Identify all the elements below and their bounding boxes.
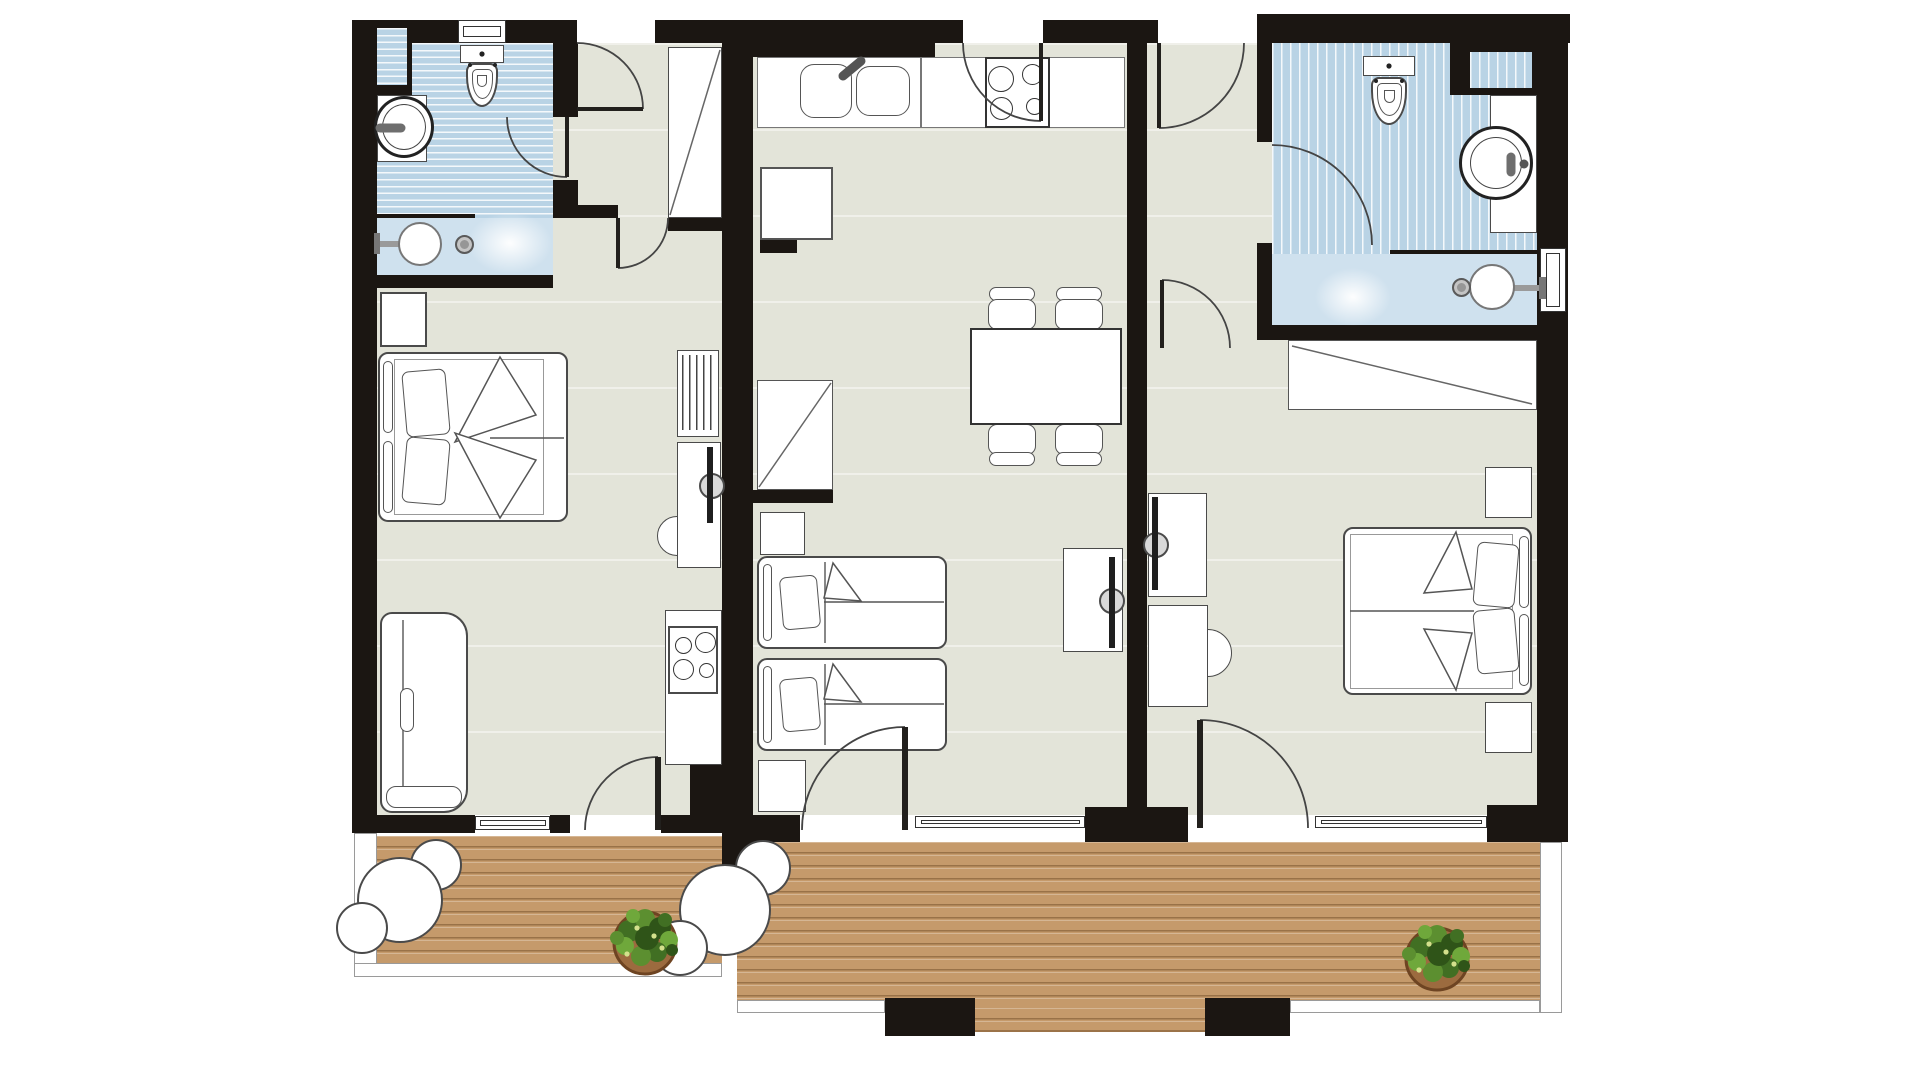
shower-head <box>398 222 442 266</box>
tv-screen <box>707 447 713 523</box>
wall-top-divider-cap <box>1148 20 1158 43</box>
tv-screen <box>1152 497 1158 590</box>
nightstand <box>758 760 806 812</box>
chair-backrest <box>989 452 1035 466</box>
burner <box>675 637 692 654</box>
wall-bottom-b1 <box>753 815 800 842</box>
balcony-deck-step <box>975 1008 1205 1032</box>
window-pane <box>1321 820 1482 824</box>
shower-control <box>455 235 474 254</box>
toilet-tank <box>460 45 504 63</box>
burner <box>1026 98 1043 115</box>
burner <box>988 66 1014 92</box>
wall-under-shower-left <box>352 275 553 288</box>
wall-stub-closet-mid <box>753 490 833 503</box>
washbasin-inner <box>382 104 426 150</box>
wall-bottom-a1 <box>377 815 475 833</box>
pillow <box>779 676 821 732</box>
chair-seat <box>1055 299 1103 330</box>
pillow <box>401 368 451 438</box>
burner <box>699 663 714 678</box>
wall-top-a3 <box>655 20 722 43</box>
window-pane <box>1546 253 1560 307</box>
bed-fold-line <box>824 562 826 643</box>
balcony-deck-main <box>737 842 1540 1008</box>
balcony-chair <box>336 902 388 954</box>
wall-niche-left <box>377 28 407 85</box>
bed-fold-line <box>824 664 826 745</box>
chair-seat <box>988 424 1036 455</box>
headboard-bar <box>383 441 393 513</box>
washbasin-inner <box>1470 137 1522 189</box>
desk <box>677 442 721 568</box>
wall-bottom-c1 <box>1487 805 1537 842</box>
chair-backrest <box>1056 452 1102 466</box>
sofa <box>380 612 468 813</box>
shower-arm-flange <box>374 233 380 254</box>
wall-stub-cabinet-mid <box>760 240 797 253</box>
burner <box>1022 64 1043 85</box>
wall-divider-mid-right <box>1127 43 1147 842</box>
shower-divider-line-left <box>377 214 475 218</box>
tall-cabinet <box>760 167 833 240</box>
wall-kitchenette-stub <box>690 760 722 833</box>
shower-head <box>1469 264 1515 310</box>
radiator <box>677 350 719 437</box>
window-balcony-middle <box>915 816 1085 828</box>
sofa-armrest <box>386 786 462 808</box>
light-glow <box>1315 268 1391 326</box>
sofa-cushion <box>400 688 414 732</box>
toilet-tank <box>1363 56 1415 76</box>
tv-screen <box>1109 557 1115 648</box>
counter-divider <box>920 58 922 127</box>
headboard-bar <box>1519 614 1529 686</box>
balcony-rail-main-right <box>1290 1000 1540 1013</box>
window-top-left <box>458 20 506 43</box>
wardrobe <box>757 380 833 490</box>
headboard-bar <box>763 564 772 641</box>
toilet-bowl-core <box>1384 90 1395 103</box>
shower-divider-line-right <box>1390 250 1537 254</box>
shower-arm-flange <box>1539 277 1546 299</box>
wall-top-b3 <box>1043 20 1148 43</box>
wall-bottom-b2 <box>1085 807 1188 842</box>
wall-top-c <box>1257 14 1570 43</box>
window-pane <box>463 26 501 37</box>
balcony-chair <box>652 920 708 976</box>
shower-control <box>1452 278 1471 297</box>
pillow <box>1472 541 1519 608</box>
pillow <box>779 574 821 630</box>
wall-bath-right-bottom <box>1257 325 1537 340</box>
wall-stub-hall-left <box>553 205 618 218</box>
light-glow <box>468 212 552 274</box>
balcony-rail-main-left <box>737 1000 885 1013</box>
kitchen-sink-bowl <box>856 66 910 116</box>
wall-bottom-a2 <box>550 815 570 833</box>
window-pane <box>921 820 1080 824</box>
headboard-bar <box>1519 536 1529 608</box>
wall-right-exterior <box>1537 14 1568 842</box>
wall-bath-left-right-a <box>553 43 578 117</box>
window-balcony-right <box>1315 816 1487 828</box>
balcony-pier-left <box>885 998 975 1036</box>
balcony-rail-right-side <box>1540 842 1562 1013</box>
window-pane <box>480 820 546 826</box>
dining-table <box>970 328 1122 425</box>
headboard-bar <box>763 666 772 743</box>
wall-niche-right <box>1470 52 1532 88</box>
chair-seat <box>988 299 1036 330</box>
nightstand <box>760 512 805 555</box>
desk <box>1148 605 1208 707</box>
radiator-fins <box>682 355 713 430</box>
wall-top-b-kitchen <box>753 20 935 57</box>
wall-bath-right-left-b <box>1257 243 1272 325</box>
nightstand <box>380 292 427 347</box>
wall-top-a2 <box>506 20 577 43</box>
chair-seat <box>1055 424 1103 455</box>
built-in-wardrobe <box>1288 340 1537 410</box>
shower-arm <box>1513 285 1541 291</box>
kitchen-sink-bowl <box>800 64 852 118</box>
burner <box>695 632 716 653</box>
wall-stub-closet-left <box>668 218 725 231</box>
balcony-pier-right <box>1205 998 1290 1036</box>
burner <box>990 97 1013 120</box>
nightstand <box>1485 702 1532 753</box>
wall-bottom-a3 <box>661 815 690 833</box>
wall-left-exterior <box>352 20 377 833</box>
pillow <box>1472 607 1519 674</box>
entry-wardrobe <box>668 47 722 218</box>
wall-top-b2 <box>935 20 963 43</box>
window-balcony-left <box>475 816 550 830</box>
toilet-bowl-core <box>477 75 487 87</box>
floor-plan <box>0 0 1920 1080</box>
burner <box>673 659 694 680</box>
nightstand <box>1485 467 1532 518</box>
wall-bath-right-left-a <box>1257 43 1272 142</box>
wall-divider-left-mid <box>722 20 753 880</box>
headboard-bar <box>383 361 393 433</box>
pillow <box>401 436 451 506</box>
